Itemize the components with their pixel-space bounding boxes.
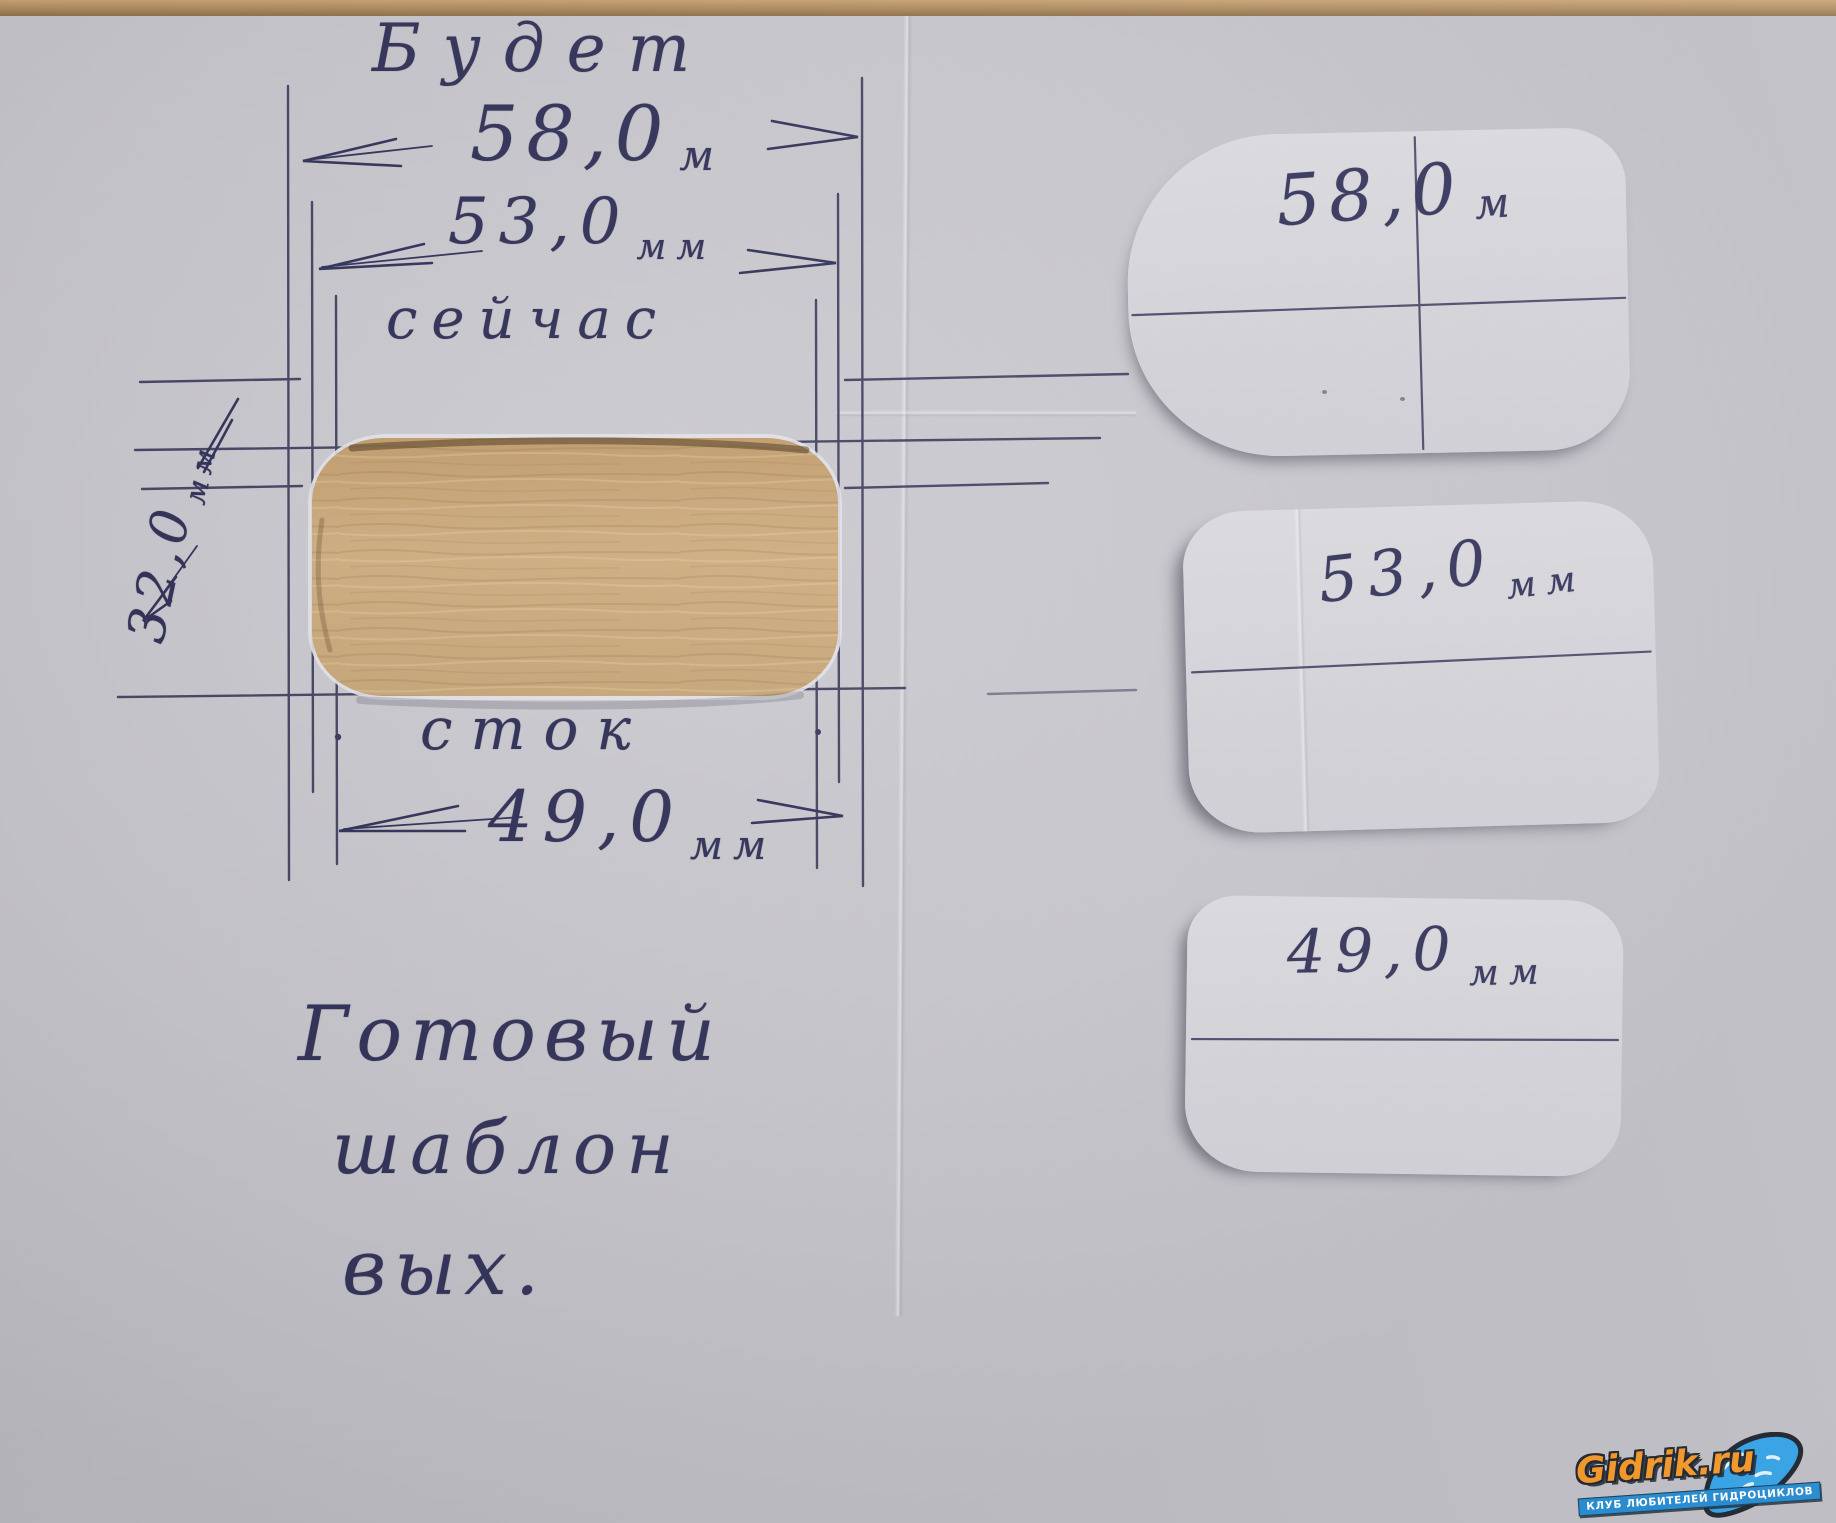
dimension-58: 58,0м — [470, 96, 722, 177]
dimension-49-unit: мм — [690, 823, 776, 869]
dimension-49: 49,0мм — [488, 782, 776, 866]
template-49-label: 49,0мм — [1286, 917, 1549, 995]
caption-line-2: шаблон — [332, 1112, 684, 1184]
dimension-53-value: 53,0 — [448, 185, 631, 259]
wood-cutout-hole — [308, 434, 842, 706]
paper-template-58: 58,0м — [1125, 127, 1632, 459]
caption-line-3: вых. — [342, 1230, 547, 1306]
paper-template-53: 53,0мм — [1182, 500, 1661, 835]
paper-speck — [1322, 390, 1327, 394]
template-49-value: 49,0 — [1286, 914, 1461, 988]
watermark-logo: Gidrik.ru КЛУБ ЛЮБИТЕЛЕЙ ГИДРОЦИКЛОВ — [1556, 1430, 1816, 1518]
label-stock: сток — [420, 700, 649, 758]
template-58-label: 58,0м — [1274, 149, 1519, 240]
template-58-unit: м — [1473, 177, 1519, 229]
template-58-value: 58,0 — [1273, 147, 1466, 243]
dimension-53: 53,0мм — [448, 190, 716, 266]
paper-template-49: 49,0мм — [1184, 895, 1624, 1177]
dimension-53-unit: мм — [637, 227, 717, 268]
label-now: сейчас — [386, 292, 670, 348]
caption-line-1: Готовый — [298, 996, 723, 1072]
dimension-58-unit: м — [679, 131, 722, 180]
paper-speck — [1400, 397, 1405, 401]
dimension-58-value: 58,0 — [470, 89, 671, 178]
dimension-49-value: 49,0 — [488, 776, 684, 858]
label-will-be: Будет — [372, 16, 712, 82]
photo-of-hand-sketch: Будет 58,0м 53,0мм сейчас 32,0мм сток 49… — [0, 0, 1836, 1523]
template-49-unit: мм — [1469, 951, 1550, 994]
